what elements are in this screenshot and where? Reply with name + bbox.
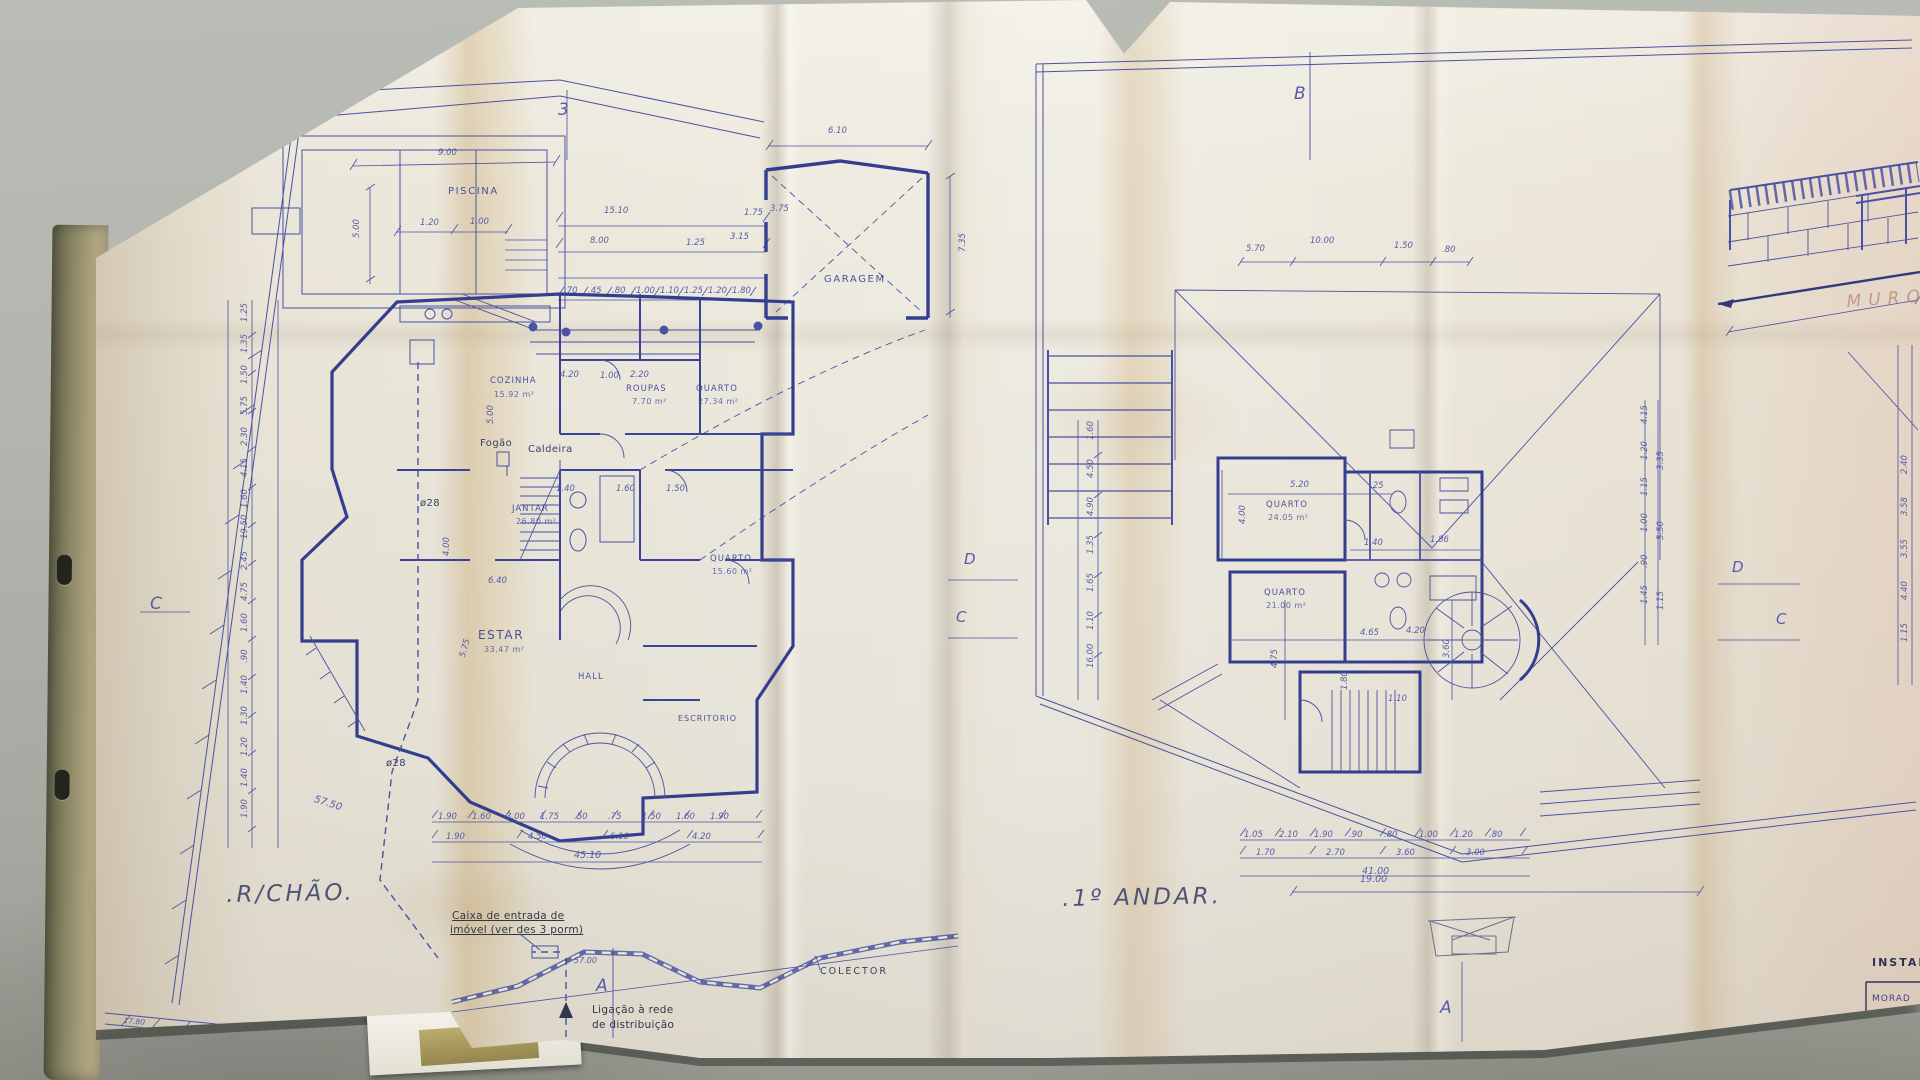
room-cozinha-area: 15.92 m² — [494, 390, 534, 399]
note-colector: COLECTOR — [820, 966, 888, 977]
dim-total-right: 41.00 — [1362, 866, 1389, 877]
dim-label: 4.75 — [240, 582, 250, 601]
dim-label: 1.90 — [438, 812, 457, 822]
garage-lines — [640, 140, 955, 560]
dim-label: .80 — [1489, 830, 1503, 840]
dim-r520: 5.20 — [1290, 480, 1309, 490]
dim-label: 1.00 — [1640, 513, 1650, 532]
dim-label: 1.50 — [240, 365, 250, 384]
section-marker-c-mid: C — [956, 608, 966, 626]
dim-label: 1.20 — [708, 286, 727, 296]
dim-label: 2.10 — [1279, 830, 1298, 840]
room-hall: HALL — [578, 672, 604, 682]
dim-label: 5.50 — [1656, 521, 1666, 540]
room-quarto: QUARTO — [696, 384, 738, 394]
dim-label: .90 — [1640, 554, 1650, 568]
dim-i420: 4.20 — [560, 370, 579, 380]
dim-label: 2.70 — [1326, 848, 1345, 858]
section-marker-d-mid: D — [964, 550, 976, 568]
note-phi28-lower: ø28 — [386, 758, 406, 769]
dim-label: 3.55 — [1900, 539, 1910, 558]
dim-label: 1.60 — [472, 812, 491, 822]
section-marker-b: B — [1294, 84, 1306, 104]
section-marker-c-left: C — [150, 594, 162, 614]
left-plan-title: .R/CHÃO. — [226, 880, 355, 908]
section-marker-a-left: A — [596, 976, 608, 996]
dim-label: 1.80 — [732, 286, 751, 296]
dim-r1000: 10.00 — [1310, 236, 1334, 246]
room-quarto2-area: 15.60 m² — [712, 567, 752, 576]
dim-r180: 1.80 — [1340, 671, 1350, 690]
dim-r150: 1.50 — [1394, 241, 1413, 251]
room-jantar-area: 26.80 m² — [516, 517, 556, 526]
pencil-sketch — [1428, 917, 1516, 956]
dim-label: .45 — [588, 286, 602, 296]
muro-elevation — [1718, 162, 1920, 336]
title-block-row1: MORAD — [1872, 994, 1911, 1004]
dim-r465: 4.65 — [1360, 628, 1379, 638]
room-quarto1-right: QUARTO — [1266, 500, 1308, 510]
dim-label: .90 — [240, 649, 250, 663]
dim-label: 1.90 — [240, 799, 250, 818]
dim-label: .75 — [608, 812, 622, 822]
dim-label: 4.15 — [1640, 405, 1650, 424]
dim-i400: 4.00 — [442, 537, 452, 556]
note-caixa-line1: Caixa de entrada de — [452, 910, 564, 922]
dim-i140: 1.40 — [556, 484, 575, 494]
dim-label: 1.00 — [1419, 830, 1438, 840]
section-marker-d-right: D — [1732, 558, 1744, 576]
room-quarto2-right-area: 21.00 m² — [1266, 601, 1306, 610]
dim-total-left: 45.10 — [574, 850, 601, 861]
dim-label: 4.50 — [528, 832, 547, 842]
blueprint-paper: .R/CHÃO. 3 C A PISCINA GARAGEM COZINHA 1… — [0, 0, 1920, 1080]
dim-label: 1.65 — [1086, 573, 1096, 592]
room-estar: ESTAR — [478, 628, 524, 642]
dim-label: 16.00 — [1086, 644, 1096, 668]
dim-garage-w: 6.10 — [828, 126, 847, 136]
section-marker-3: 3 — [558, 100, 569, 120]
room-jantar: JANTAR — [512, 504, 549, 514]
dim-label: .70 — [564, 286, 578, 296]
dim-i150: 1.50 — [666, 484, 685, 494]
dim-r360: 3.60 — [1442, 639, 1452, 658]
dim-pool-h: 5.00 — [352, 219, 362, 238]
dim-r400: 4.00 — [1238, 505, 1248, 524]
room-quarto2-right: QUARTO — [1264, 588, 1306, 598]
dim-pool-c2: 1.00 — [470, 217, 489, 227]
dim-label: 1.25 — [684, 286, 703, 296]
dim-label: 1.60 — [1086, 421, 1096, 440]
note-ligacao-line2: de distribuição — [592, 1019, 674, 1031]
dim-pool-w: 9.00 — [438, 148, 457, 158]
room-piscina: PISCINA — [448, 186, 499, 197]
right-plan-title: .1º ANDAR. — [1062, 883, 1222, 912]
dim-label: 1.60 — [240, 613, 250, 632]
dim-r420: 4.20 — [1406, 626, 1425, 636]
room-quarto2: QUARTO — [710, 554, 752, 564]
dim-label: 1.20 — [1454, 830, 1473, 840]
dim-garage-h: 7.35 — [958, 233, 968, 252]
dim-1510: 15.10 — [604, 206, 628, 216]
note-phi28-upper: ø28 — [420, 498, 440, 509]
dim-label: 6.10 — [610, 832, 629, 842]
dim-label: 3.00 — [506, 812, 525, 822]
dim-label: .90 — [1349, 830, 1363, 840]
section-marker-c-right: C — [1776, 610, 1786, 628]
dim-375: 3.75 — [770, 204, 789, 214]
dim-label: 2.45 — [240, 551, 250, 570]
dim-r475: 4.75 — [1270, 649, 1280, 668]
dim-label: 1.60 — [240, 489, 250, 508]
dim-label: 1.40 — [240, 675, 250, 694]
house-right-walls — [1152, 458, 1539, 772]
dim-label: 1.05 — [1244, 830, 1263, 840]
room-roupas-area: 7.70 m² — [632, 397, 667, 406]
section-marker-a-right: A — [1440, 998, 1452, 1018]
note-ligacao-line1: Ligação à rede — [592, 1004, 673, 1016]
room-garagem: GARAGEM — [824, 274, 886, 285]
dim-i640: 6.40 — [488, 576, 507, 586]
dim-label: 1.75 — [540, 812, 559, 822]
left-dim-rails — [140, 90, 1018, 862]
dim-label: 1.40 — [240, 768, 250, 787]
dim-label: 4.50 — [1086, 459, 1096, 478]
dim-i220: 2.20 — [630, 370, 649, 380]
dim-label: 1.15 — [1640, 477, 1650, 496]
dim-wall: 17.80 — [123, 1016, 145, 1027]
room-roupas: ROUPAS — [626, 384, 667, 394]
dim-r110: 1.10 — [1388, 694, 1407, 704]
dim-label: 1.60 — [676, 812, 695, 822]
porch-lines — [510, 733, 690, 869]
dim-label: 1.15 — [1900, 623, 1910, 642]
dim-label: 4.40 — [1900, 581, 1910, 600]
dim-label: 1.50 — [642, 812, 661, 822]
right-dim-rails — [1078, 257, 1918, 1042]
dim-label: 4.90 — [1086, 497, 1096, 516]
dim-label: 3.60 — [1396, 848, 1415, 858]
dim-label: 3.58 — [1900, 497, 1910, 516]
dim-label: 1.20 — [1640, 441, 1650, 460]
dim-label: 1.35 — [1086, 535, 1096, 554]
pool-lines — [252, 136, 565, 308]
dim-label: 1.70 — [1256, 848, 1275, 858]
dim-label: 1.20 — [240, 737, 250, 756]
right-plot-boundary — [1036, 40, 1916, 862]
dim-label: 2.40 — [1900, 455, 1910, 474]
dim-label: 1.10 — [660, 286, 679, 296]
dim-pool-c1: 1.20 — [420, 218, 439, 228]
dim-label: 1.30 — [240, 706, 250, 725]
dim-label: 1.35 — [240, 334, 250, 353]
pergola-lines — [1048, 350, 1172, 525]
dim-label: .80 — [1384, 830, 1398, 840]
dim-315: 3.15 — [730, 232, 749, 242]
room-quarto-area: 27.34 m² — [698, 397, 738, 406]
note-fogao: Fogão — [480, 438, 512, 449]
dim-label: 1.90 — [710, 812, 729, 822]
dim-label: .50 — [574, 812, 588, 822]
dim-label: 1.00 — [636, 286, 655, 296]
room-quarto1-right-area: 24.05 m² — [1268, 513, 1308, 522]
dim-label: 1.45 — [1640, 585, 1650, 604]
dim-label: 5.75 — [240, 396, 250, 415]
dim-800: 8.00 — [590, 236, 609, 246]
roof-lines — [1160, 290, 1700, 816]
terrace-lines — [455, 294, 762, 354]
dim-r140: 1.40 — [1364, 538, 1383, 548]
dim-i500: 5.00 — [486, 405, 496, 424]
dim-175: 1.75 — [744, 208, 763, 218]
dim-125: 1.25 — [686, 238, 705, 248]
dim-label: 1.15 — [1656, 591, 1666, 610]
dim-label: 1.25 — [240, 303, 250, 322]
dim-label: 19.50 — [240, 515, 250, 539]
room-estar-area: 33.47 m² — [484, 645, 524, 654]
dim-label: 4.15 — [240, 458, 250, 477]
dim-label: 4.20 — [692, 832, 711, 842]
note-caldeira: Caldeira — [528, 444, 573, 455]
dim-r080: .80 — [1442, 245, 1456, 255]
dim-label: 3.35 — [1656, 451, 1666, 470]
dim-r025: .25 — [1370, 481, 1384, 491]
dim-label: 2.30 — [240, 427, 250, 446]
dim-i160: 1.60 — [616, 484, 635, 494]
dim-r186: 1.86 — [1430, 535, 1449, 545]
title-block-header: INSTAL — [1872, 956, 1920, 969]
dim-i100: 1.00 — [600, 371, 619, 381]
dim-label: 1.10 — [1086, 611, 1096, 630]
dim-label: 1.90 — [446, 832, 465, 842]
binder-hole — [54, 770, 69, 800]
binder-hole — [57, 555, 72, 585]
dim-r570: 5.70 — [1246, 244, 1265, 254]
note-caixa-line2: imóvel (ver des 3 porm) — [450, 924, 583, 936]
blueprint-linework — [0, 0, 1920, 1080]
dim-label: 1.90 — [1314, 830, 1333, 840]
dim-label: 3.00 — [1466, 848, 1485, 858]
room-cozinha: COZINHA — [490, 376, 537, 386]
room-escritorio: ESCRITORIO — [678, 714, 737, 723]
dim-label: .80 — [612, 286, 626, 296]
dim-5700: 57.00 — [574, 956, 597, 965]
